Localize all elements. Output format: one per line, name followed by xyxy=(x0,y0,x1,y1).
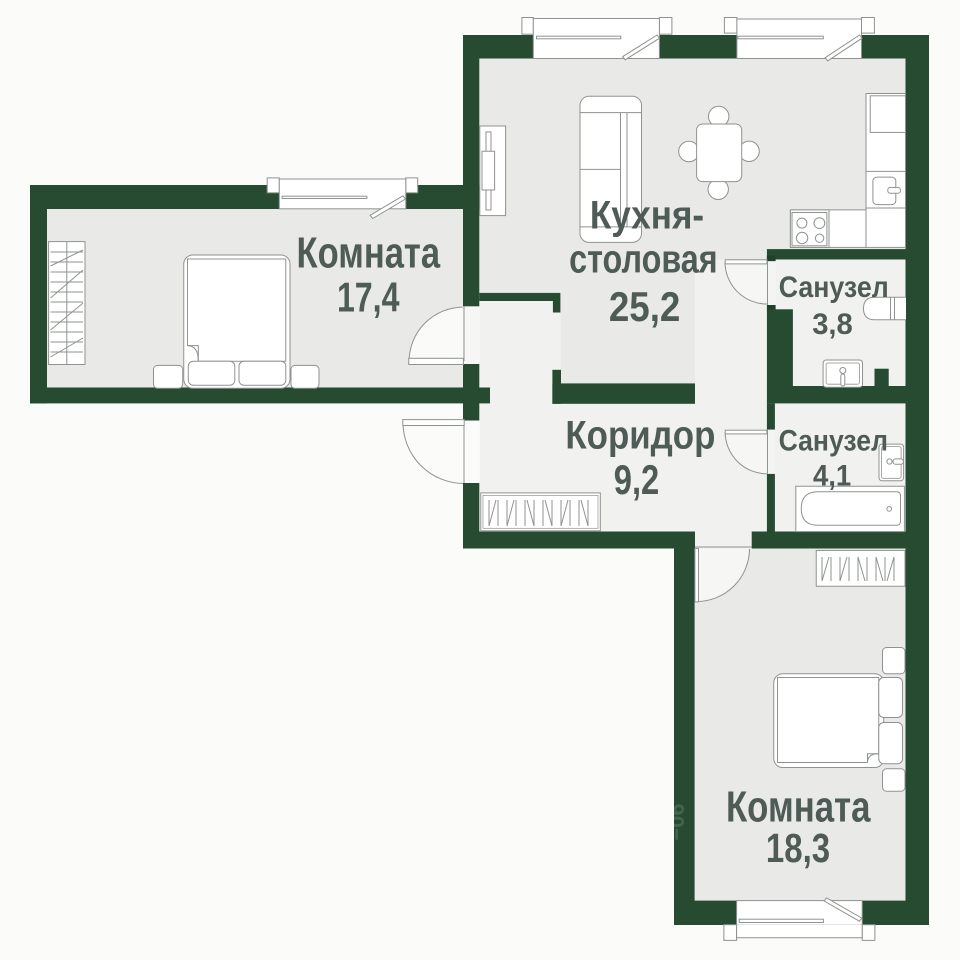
svg-text:−06: −06 xyxy=(664,803,689,840)
svg-text:4,1: 4,1 xyxy=(813,460,851,493)
svg-text:18,3: 18,3 xyxy=(766,825,830,871)
svg-text:25,2: 25,2 xyxy=(609,283,681,330)
svg-text:17,4: 17,4 xyxy=(337,274,400,321)
svg-text:Кухня-: Кухня- xyxy=(590,194,704,238)
svg-text:Комната: Комната xyxy=(297,230,441,278)
svg-text:Санузел: Санузел xyxy=(779,425,888,458)
svg-text:3,8: 3,8 xyxy=(812,308,853,341)
svg-text:Коридор: Коридор xyxy=(565,413,715,457)
svg-text:9,2: 9,2 xyxy=(614,456,660,503)
svg-text:Санузел: Санузел xyxy=(779,271,889,304)
svg-text:столовая: столовая xyxy=(569,238,718,282)
